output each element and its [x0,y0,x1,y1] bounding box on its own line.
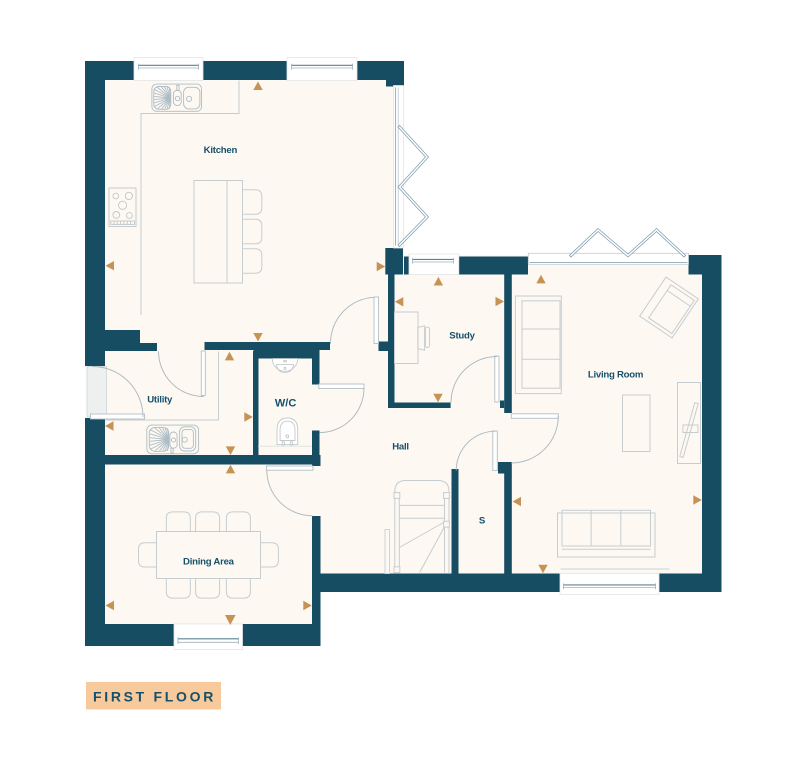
svg-text:Study: Study [449,330,475,341]
svg-text:Hall: Hall [392,442,409,453]
svg-text:Kitchen: Kitchen [204,145,238,156]
svg-text:S: S [479,516,486,527]
svg-text:W/C: W/C [275,397,296,409]
svg-text:Dining Area: Dining Area [183,557,235,568]
svg-text:FIRST FLOOR: FIRST FLOOR [93,689,216,705]
svg-text:Living Room: Living Room [588,370,643,381]
svg-text:Utility: Utility [147,395,173,406]
